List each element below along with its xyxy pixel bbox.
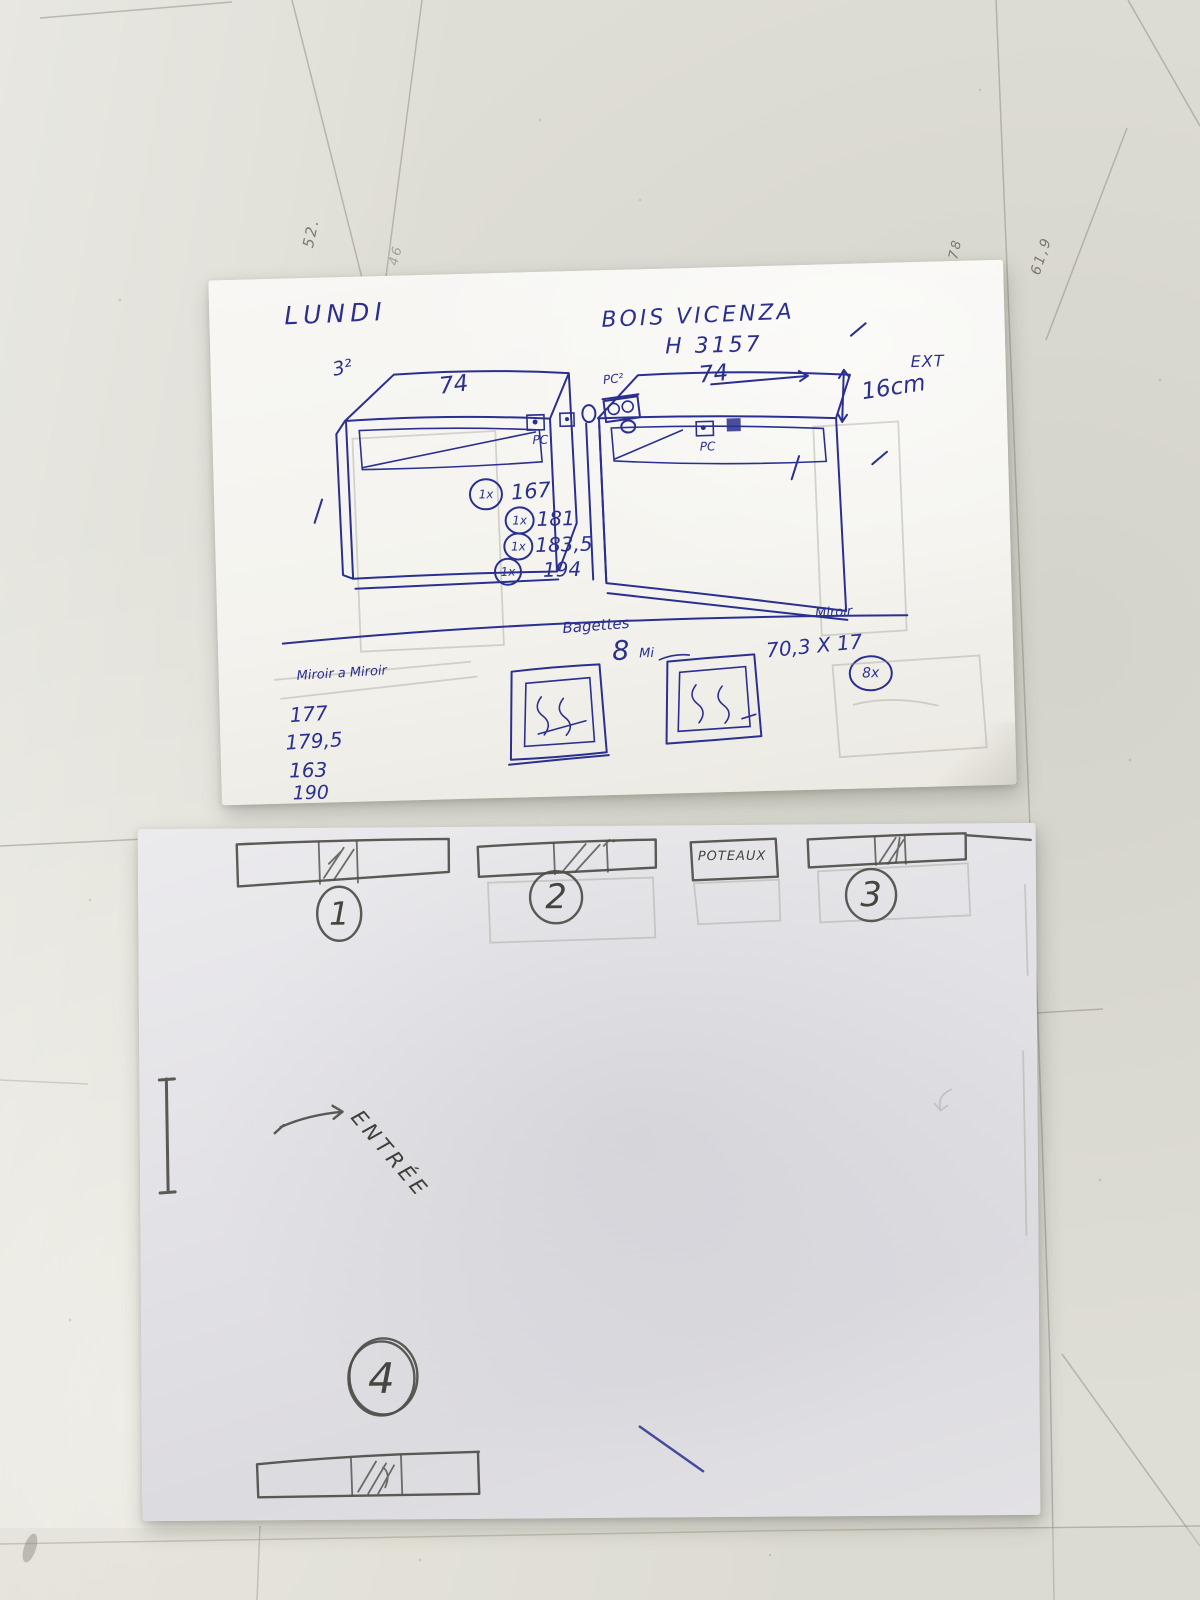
faint-curve-arrow (934, 1089, 951, 1110)
plan-linework (138, 823, 1041, 1521)
window-3-sketch (808, 833, 1031, 868)
right-cabinet-sketch (597, 369, 856, 626)
pillar-label: POTEAUX (698, 849, 767, 864)
junction-label: PC² (602, 371, 624, 387)
zone-number-1: 1 (329, 895, 350, 933)
mirror-frame-2 (664, 654, 761, 743)
mirror-length-4: 190 (292, 782, 329, 805)
mirror-note-qty: 8 (612, 636, 630, 667)
right-edge-marks (1022, 885, 1029, 1235)
cut-qty-4: 1x (500, 565, 515, 579)
window-2-sketch (478, 839, 656, 877)
entrance-door-sketch (159, 1078, 343, 1193)
cut-value-2: 181 (536, 506, 575, 531)
photo-of-sketches: 52. 46 INT 78 61,9 (0, 0, 1200, 1600)
mirror-frame-1 (506, 664, 609, 765)
mirror-length-3: 163 (289, 758, 328, 783)
right-compartment-label: PC (700, 439, 716, 453)
zone-circles (317, 869, 900, 1416)
reference-number: H 3157 (665, 332, 763, 360)
window-1-sketch (237, 839, 449, 886)
zone-number-2: 2 (545, 877, 567, 917)
left-compartment-label: PC (532, 433, 548, 447)
corner-note: 3² (331, 355, 355, 380)
plan-sheet: 1 2 3 4 POTEAUX ENTRÉE (138, 823, 1041, 1521)
mirror-header: Miroir (815, 604, 853, 621)
sketch-sheet: LUNDI BOIS VICENZA H 3157 3² 74 74 PC PC… (208, 260, 1016, 806)
zone-number-4: 4 (368, 1354, 395, 1403)
depth-label: EXT (910, 351, 944, 371)
right-width-label: 74 (698, 360, 730, 389)
mirror-note-word: Mi (639, 646, 654, 661)
cut-qty-2: 1x (512, 513, 527, 527)
cut-value-3: 183,5 (535, 532, 593, 557)
sketch-linework (208, 260, 1016, 806)
cut-qty-1: 1x (478, 487, 493, 501)
mirror-length-1: 177 (289, 701, 329, 727)
day-label: LUNDI (284, 297, 388, 330)
mirror-length-2: 179,5 (285, 727, 344, 754)
cut-qty-3: 1x (511, 539, 526, 553)
cut-value-4: 194 (543, 557, 582, 582)
stray-pen-stroke (640, 1426, 703, 1471)
window-4-sketch (257, 1452, 479, 1498)
mirror-qty: 8x (862, 665, 880, 681)
cut-value-1: 167 (510, 478, 552, 505)
mirror-frame-ghost (832, 655, 987, 757)
left-width-label: 74 (438, 371, 470, 400)
zone-number-3: 3 (860, 875, 882, 915)
